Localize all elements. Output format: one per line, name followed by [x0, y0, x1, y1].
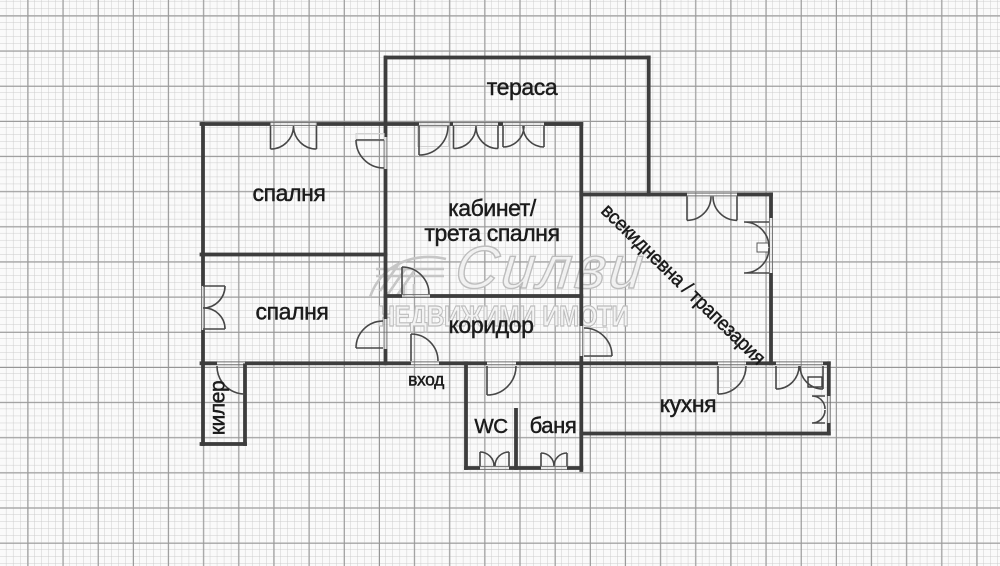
svg-text:WC: WC: [474, 415, 508, 438]
svg-text:коридор: коридор: [449, 312, 534, 338]
svg-text:спалня: спалня: [256, 299, 329, 325]
svg-text:кабинет/: кабинет/: [448, 195, 537, 221]
svg-text:баня: баня: [530, 413, 577, 438]
svg-text:вход: вход: [408, 370, 444, 390]
svg-text:килер: килер: [207, 381, 230, 436]
svg-text:тераса: тераса: [487, 74, 558, 100]
svg-text:спалня: спалня: [253, 180, 326, 206]
svg-text:кухня: кухня: [660, 391, 716, 417]
svg-text:трета спалня: трета спалня: [424, 220, 559, 246]
